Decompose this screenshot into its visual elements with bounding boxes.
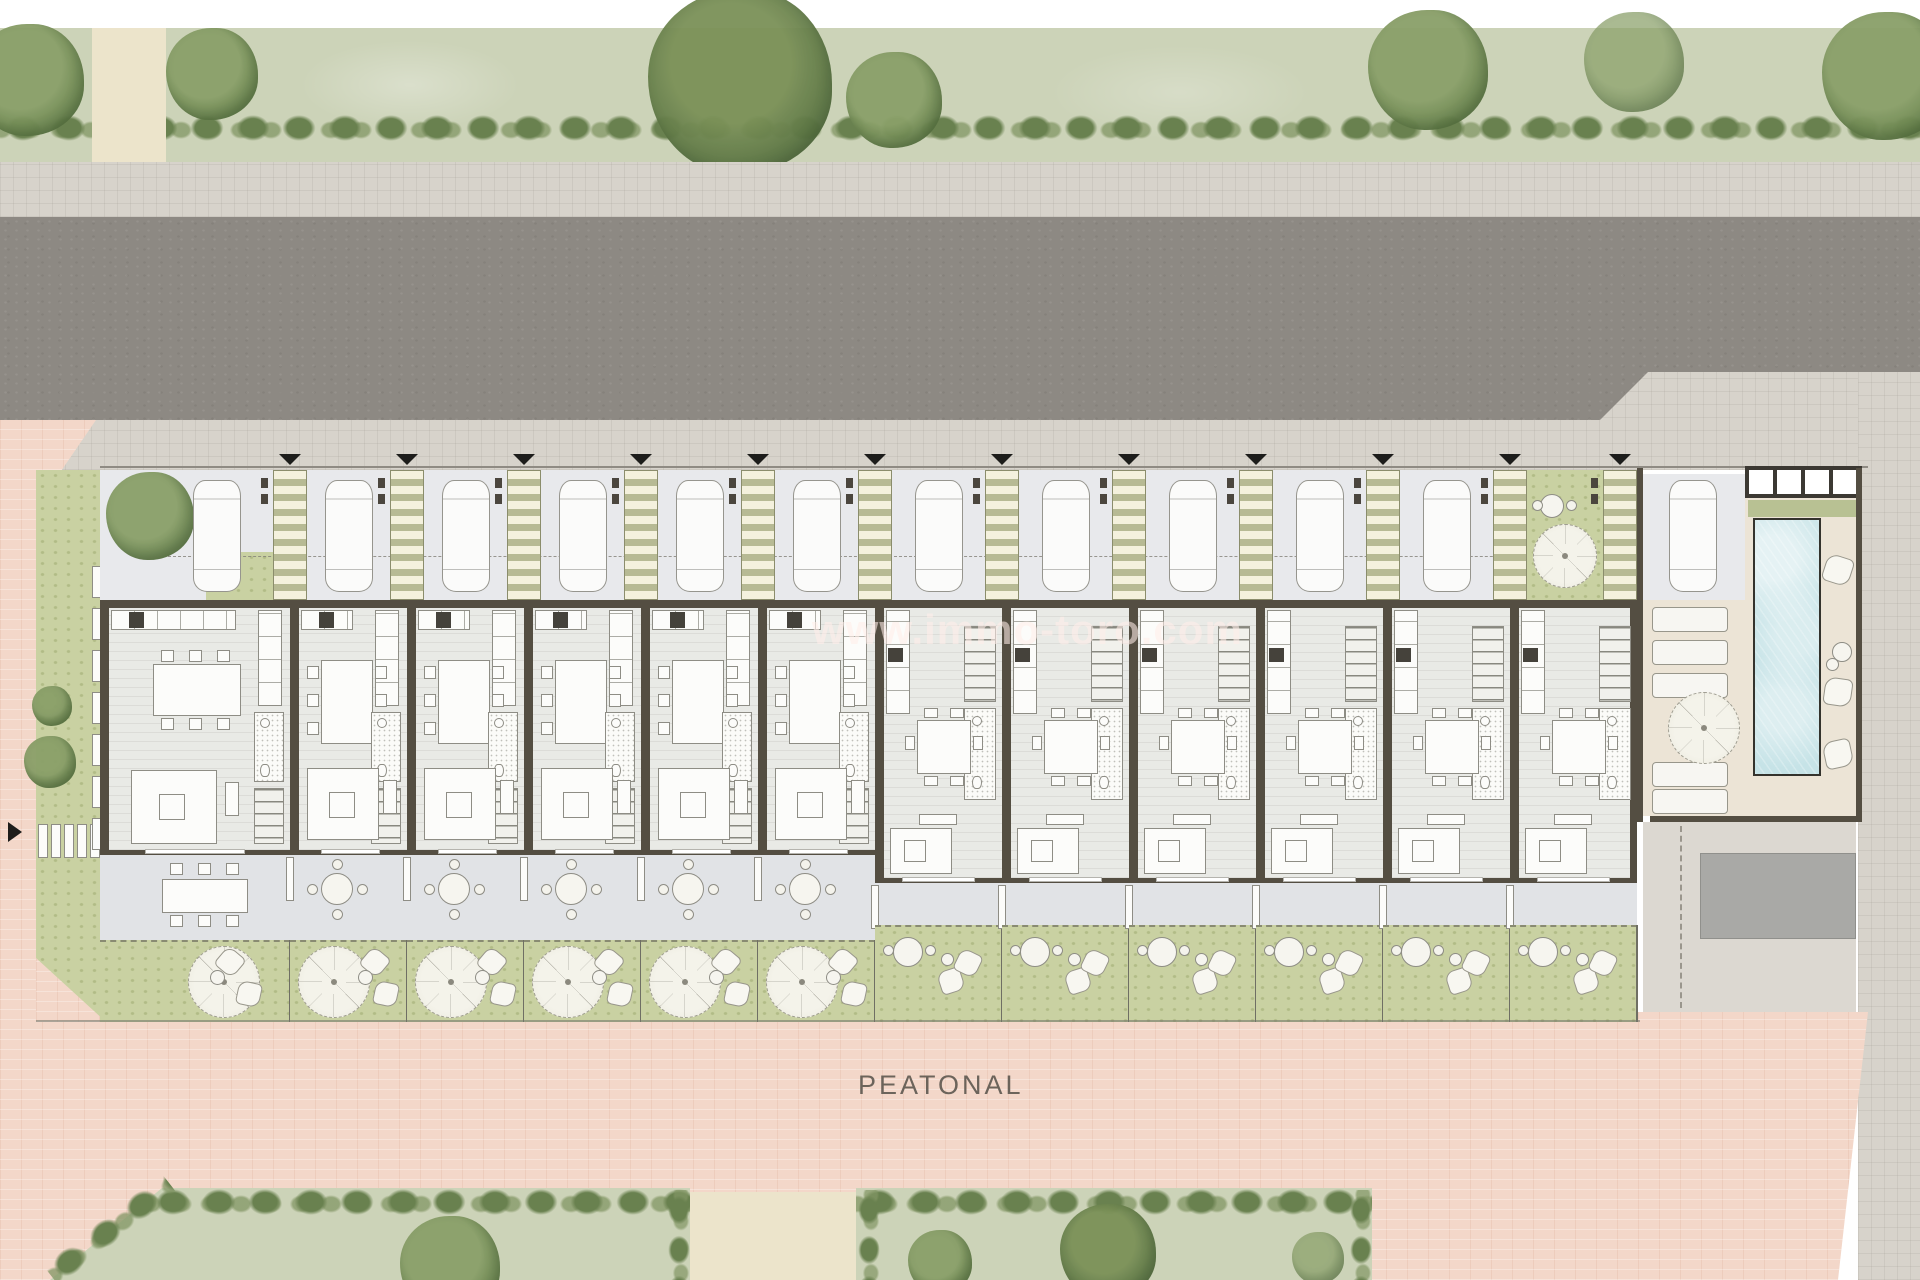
chair xyxy=(1159,736,1169,750)
sink xyxy=(1607,716,1617,726)
dining-table xyxy=(789,660,841,744)
side-table xyxy=(1322,953,1335,966)
armchair xyxy=(383,780,397,814)
chair xyxy=(883,945,894,956)
chair xyxy=(1077,708,1091,718)
chair xyxy=(1204,776,1218,786)
pergola xyxy=(1366,470,1400,600)
stove xyxy=(1269,648,1284,662)
car xyxy=(1169,480,1217,592)
terrace-column xyxy=(754,857,762,901)
chair xyxy=(161,650,174,662)
chair xyxy=(1432,776,1446,786)
car xyxy=(193,480,241,592)
chair xyxy=(1179,945,1190,956)
chair xyxy=(1585,776,1599,786)
stove xyxy=(1523,648,1538,662)
glass-door xyxy=(1410,877,1483,882)
pavilion-panel xyxy=(1777,470,1801,494)
car xyxy=(559,480,607,592)
chair xyxy=(1413,736,1423,750)
chair xyxy=(1051,708,1065,718)
shrub xyxy=(24,736,76,788)
chair xyxy=(1077,776,1091,786)
pool xyxy=(1753,518,1821,776)
chair xyxy=(307,884,318,895)
pergola xyxy=(1239,470,1273,600)
sidewalk xyxy=(1858,372,1920,1280)
chair xyxy=(843,666,855,679)
chair xyxy=(591,884,602,895)
pavilion-panel xyxy=(1833,470,1857,494)
kitchen-counter xyxy=(375,610,399,706)
chair xyxy=(217,650,230,662)
chair xyxy=(1518,945,1529,956)
chair xyxy=(541,722,553,735)
chair xyxy=(198,863,211,875)
kitchen-counter xyxy=(726,610,750,706)
staircase xyxy=(254,788,284,844)
glass-door xyxy=(789,849,848,854)
garden xyxy=(1383,925,1510,1022)
car xyxy=(442,480,490,592)
garden-table xyxy=(1528,937,1558,967)
side-table xyxy=(709,970,724,985)
tree xyxy=(166,28,258,120)
dining-table xyxy=(672,660,724,744)
side-table xyxy=(1068,953,1081,966)
sink xyxy=(1099,716,1109,726)
chair xyxy=(1331,708,1345,718)
fence xyxy=(1636,925,1638,1022)
pergola xyxy=(390,470,424,600)
terrace-column xyxy=(871,885,879,929)
armchair xyxy=(225,782,239,816)
door-marker xyxy=(261,478,268,488)
sofa-cushion xyxy=(1412,840,1434,862)
chair xyxy=(1391,945,1402,956)
terrace-column xyxy=(1252,885,1260,929)
garden-table xyxy=(1147,937,1177,967)
chair xyxy=(541,884,552,895)
pergola xyxy=(1493,470,1527,600)
chair xyxy=(170,915,183,927)
glass-door xyxy=(438,849,497,854)
sink xyxy=(1353,716,1363,726)
chair xyxy=(1458,708,1472,718)
chair xyxy=(566,909,577,920)
hedge-col xyxy=(854,1190,882,1280)
dining-table xyxy=(153,664,241,716)
chair xyxy=(609,694,621,707)
terrace xyxy=(1510,883,1637,925)
chair xyxy=(492,666,504,679)
dining-table xyxy=(1425,720,1479,774)
hedge-col xyxy=(664,1190,692,1280)
chair xyxy=(1354,736,1364,750)
chair xyxy=(1178,708,1192,718)
garden-table xyxy=(893,937,923,967)
chair xyxy=(1560,945,1571,956)
side-table xyxy=(826,970,841,985)
dining-table xyxy=(1552,720,1606,774)
entrance-arrow xyxy=(1609,454,1631,465)
terrace-table xyxy=(162,879,248,913)
door-marker xyxy=(729,478,736,488)
chair xyxy=(161,718,174,730)
sink xyxy=(845,718,855,728)
car xyxy=(325,480,373,592)
tree xyxy=(1368,10,1488,130)
pergola xyxy=(624,470,658,600)
entrance-arrow xyxy=(991,454,1013,465)
terrace xyxy=(875,883,1002,925)
terrace xyxy=(1002,883,1129,925)
chair xyxy=(541,666,553,679)
terrace-column xyxy=(286,857,294,901)
terrace-column xyxy=(1125,885,1133,929)
staircase xyxy=(1599,626,1631,702)
terrace-column xyxy=(998,885,1006,929)
chair xyxy=(658,722,670,735)
chair xyxy=(307,722,319,735)
entrance-arrow xyxy=(396,454,418,465)
watermark: www.immo-toro.com xyxy=(812,606,1243,654)
armchair xyxy=(851,780,865,814)
chair xyxy=(1010,945,1021,956)
terrace-table xyxy=(672,873,704,905)
chair xyxy=(726,694,738,707)
coffee-table xyxy=(329,792,355,818)
coffee-table xyxy=(446,792,472,818)
garden-table xyxy=(1540,494,1564,518)
boundary-dashed xyxy=(1680,826,1682,1008)
dining-table xyxy=(438,660,490,744)
stove xyxy=(670,612,685,628)
sink xyxy=(972,716,982,726)
glass-door xyxy=(321,849,380,854)
pergola xyxy=(985,470,1019,600)
chair xyxy=(1432,708,1446,718)
stepping-stone xyxy=(64,824,74,858)
chair xyxy=(1481,736,1491,750)
chair xyxy=(973,736,983,750)
stepping-stone xyxy=(51,824,61,858)
chair xyxy=(1227,736,1237,750)
kitchen-counter xyxy=(609,610,633,706)
chair xyxy=(1559,708,1573,718)
chair xyxy=(492,694,504,707)
dining-table xyxy=(1044,720,1098,774)
toilet xyxy=(972,776,982,789)
chair xyxy=(925,945,936,956)
pergola xyxy=(741,470,775,600)
site-plan: www.immo-toro.com PEATONAL xyxy=(0,0,1920,1280)
chair xyxy=(170,863,183,875)
coffee-table xyxy=(680,792,706,818)
sink xyxy=(611,718,621,728)
sofa-cushion xyxy=(1285,840,1307,862)
door-marker xyxy=(1354,494,1361,504)
chair xyxy=(950,708,964,718)
chair xyxy=(1264,945,1275,956)
chair xyxy=(950,776,964,786)
chair xyxy=(1540,736,1550,750)
door-marker xyxy=(1354,478,1361,488)
toilet xyxy=(1226,776,1236,789)
parasol xyxy=(1533,524,1597,588)
chair xyxy=(424,694,436,707)
chair xyxy=(1305,708,1319,718)
chair xyxy=(683,909,694,920)
chair xyxy=(1566,500,1577,511)
kitchen-counter xyxy=(1267,610,1291,714)
terrace-column xyxy=(1506,885,1514,929)
sink xyxy=(1480,716,1490,726)
stove xyxy=(319,612,334,628)
door-marker xyxy=(973,494,980,504)
tv-sideboard xyxy=(1173,814,1211,825)
chair xyxy=(708,884,719,895)
door-marker xyxy=(1481,478,1488,488)
chair xyxy=(424,884,435,895)
chair xyxy=(905,736,915,750)
toilet xyxy=(1607,776,1617,789)
chair xyxy=(1458,776,1472,786)
pavilion-panel xyxy=(1805,470,1829,494)
sink xyxy=(377,718,387,728)
coffee-table xyxy=(563,792,589,818)
door-marker xyxy=(1591,494,1598,504)
glass-door xyxy=(1537,877,1610,882)
chair xyxy=(924,776,938,786)
tree xyxy=(846,52,942,148)
armchair xyxy=(734,780,748,814)
door-marker xyxy=(1227,478,1234,488)
garden xyxy=(1002,925,1129,1022)
chair xyxy=(1286,736,1296,750)
toilet xyxy=(1353,776,1363,789)
terrace-table xyxy=(789,873,821,905)
chair xyxy=(683,859,694,870)
chair xyxy=(1585,708,1599,718)
glass-door xyxy=(555,849,614,854)
chair xyxy=(424,666,436,679)
stove xyxy=(1396,648,1411,662)
terrace-table xyxy=(321,873,353,905)
garden-table xyxy=(1020,937,1050,967)
pergola xyxy=(1112,470,1146,600)
terrace-column xyxy=(637,857,645,901)
sofa-cushion xyxy=(1031,840,1053,862)
door-marker xyxy=(729,494,736,504)
garden xyxy=(1256,925,1383,1022)
pergola xyxy=(273,470,307,600)
stove xyxy=(787,612,802,628)
terrace xyxy=(1383,883,1510,925)
chair xyxy=(375,694,387,707)
coffee-table xyxy=(797,792,823,818)
tv-sideboard xyxy=(1300,814,1338,825)
garden-path xyxy=(690,1192,856,1280)
car xyxy=(793,480,841,592)
door-marker xyxy=(495,494,502,504)
terrace-column xyxy=(520,857,528,901)
terrace xyxy=(1256,883,1383,925)
tree xyxy=(908,1230,972,1280)
chair xyxy=(775,884,786,895)
dining-table xyxy=(1298,720,1352,774)
sink xyxy=(1226,716,1236,726)
chair xyxy=(726,666,738,679)
entrance-arrow xyxy=(279,454,301,465)
door-marker xyxy=(1100,478,1107,488)
door-marker xyxy=(378,478,385,488)
chair xyxy=(1051,776,1065,786)
pavilion-panel xyxy=(1749,470,1773,494)
chair xyxy=(825,884,836,895)
door-marker xyxy=(378,494,385,504)
entrance-arrow xyxy=(1499,454,1521,465)
side-table xyxy=(1449,953,1462,966)
glass-door xyxy=(1029,877,1102,882)
tv-sideboard xyxy=(1427,814,1465,825)
chair xyxy=(1032,736,1042,750)
planter xyxy=(1748,500,1858,517)
door-marker xyxy=(261,494,268,504)
chair xyxy=(775,722,787,735)
chair xyxy=(307,694,319,707)
chair xyxy=(449,859,460,870)
chair xyxy=(357,884,368,895)
stepping-stone xyxy=(77,824,87,858)
sink xyxy=(494,718,504,728)
car xyxy=(676,480,724,592)
sink xyxy=(260,718,270,728)
stove xyxy=(436,612,451,628)
entrance-arrow xyxy=(1372,454,1394,465)
toilet xyxy=(1099,776,1109,789)
stove xyxy=(129,612,144,628)
terrace xyxy=(1129,883,1256,925)
chair xyxy=(375,666,387,679)
side-table xyxy=(1826,658,1839,671)
door-marker xyxy=(846,478,853,488)
chair xyxy=(189,718,202,730)
side-table xyxy=(475,970,490,985)
chair xyxy=(1559,776,1573,786)
door-marker xyxy=(846,494,853,504)
sofa-cushion xyxy=(1158,840,1180,862)
side-table xyxy=(1576,953,1589,966)
tv-sideboard xyxy=(1046,814,1084,825)
car xyxy=(1296,480,1344,592)
hedge-row xyxy=(0,108,1920,164)
side-table xyxy=(358,970,373,985)
sofa-cushion xyxy=(904,840,926,862)
garden xyxy=(1129,925,1256,1022)
chair xyxy=(198,915,211,927)
chair xyxy=(1305,776,1319,786)
chair xyxy=(1178,776,1192,786)
staircase xyxy=(1345,626,1377,702)
car xyxy=(1042,480,1090,592)
coffee-table xyxy=(159,794,185,820)
garden-path xyxy=(92,28,166,162)
stepping-stone xyxy=(38,824,48,858)
chair xyxy=(217,718,230,730)
glass-door xyxy=(1156,877,1229,882)
sidewalk xyxy=(0,162,1920,217)
tv-sideboard xyxy=(919,814,957,825)
terrace-table xyxy=(555,873,587,905)
chair xyxy=(1137,945,1148,956)
tree xyxy=(1584,12,1684,112)
site-edge xyxy=(36,1020,1640,1022)
door-marker xyxy=(495,478,502,488)
sofa-cushion xyxy=(1539,840,1561,862)
entrance-arrow xyxy=(630,454,652,465)
garden xyxy=(875,925,1002,1022)
kitchen-counter xyxy=(492,610,516,706)
armchair xyxy=(500,780,514,814)
chair xyxy=(1100,736,1110,750)
chair xyxy=(332,859,343,870)
armchair xyxy=(617,780,631,814)
staircase xyxy=(1472,626,1504,702)
door-marker xyxy=(1227,494,1234,504)
pergola xyxy=(858,470,892,600)
chair xyxy=(658,666,670,679)
tv-sideboard xyxy=(1554,814,1592,825)
shrub xyxy=(106,472,194,560)
dining-table xyxy=(555,660,607,744)
garden-table xyxy=(1401,937,1431,967)
door-marker xyxy=(1100,494,1107,504)
side-table xyxy=(941,953,954,966)
sun-lounger xyxy=(1652,789,1728,814)
access-arrow xyxy=(8,822,22,842)
side-table xyxy=(1195,953,1208,966)
dining-table xyxy=(321,660,373,744)
kitchen-counter xyxy=(258,610,282,706)
glass-door xyxy=(902,877,975,882)
tree xyxy=(1292,1232,1344,1280)
door-marker xyxy=(973,478,980,488)
chair xyxy=(307,666,319,679)
toilet xyxy=(1480,776,1490,789)
entrance-arrow xyxy=(513,454,535,465)
shrub xyxy=(32,686,72,726)
chair xyxy=(1306,945,1317,956)
door-marker xyxy=(612,478,619,488)
glass-door xyxy=(672,849,731,854)
door-marker xyxy=(612,494,619,504)
dining-table xyxy=(917,720,971,774)
toilet xyxy=(260,764,270,777)
car xyxy=(1669,480,1717,592)
terrace-table xyxy=(438,873,470,905)
kitchen-counter xyxy=(1394,610,1418,714)
platform xyxy=(1700,853,1856,939)
chair xyxy=(800,859,811,870)
chair xyxy=(566,859,577,870)
chair xyxy=(843,694,855,707)
entrance-arrow xyxy=(864,454,886,465)
entrance-arrow xyxy=(1245,454,1267,465)
chair xyxy=(226,915,239,927)
chair xyxy=(332,909,343,920)
